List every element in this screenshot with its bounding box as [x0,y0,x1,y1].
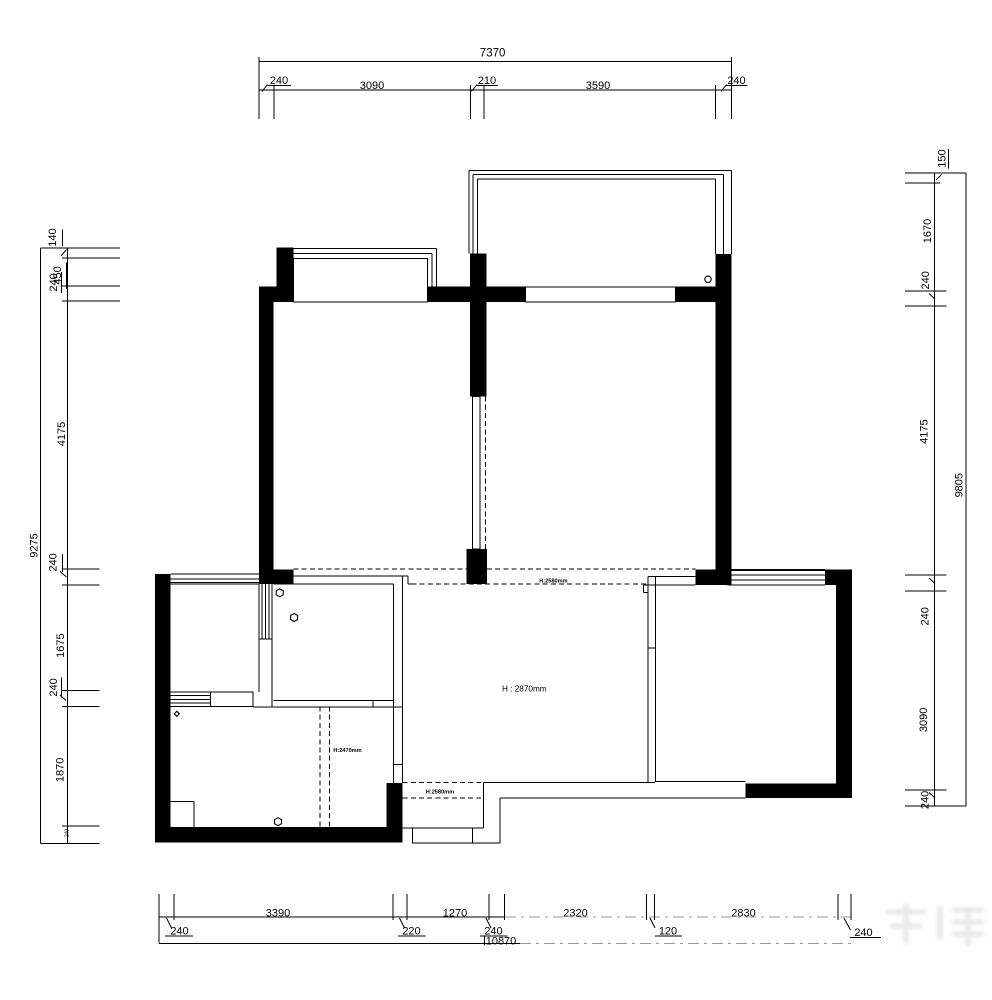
svg-text:9805: 9805 [954,473,966,497]
svg-text:240: 240 [65,829,71,838]
svg-text:240: 240 [48,553,60,571]
svg-text:240: 240 [920,607,932,625]
svg-text:240: 240 [920,791,932,809]
svg-text:4175: 4175 [919,419,931,443]
svg-text:3590: 3590 [586,80,610,92]
svg-text:1270: 1270 [443,908,467,920]
svg-text:240: 240 [920,271,932,289]
svg-text:220: 220 [402,926,420,938]
svg-text:120: 120 [659,926,677,938]
svg-text:3390: 3390 [266,908,290,920]
svg-text:9275: 9275 [29,533,41,557]
svg-text:H:2580mm: H:2580mm [426,790,454,796]
svg-text:3090: 3090 [360,80,384,92]
svg-text:2830: 2830 [731,908,755,920]
svg-text:4175: 4175 [56,422,68,446]
svg-text:7370: 7370 [480,48,506,60]
svg-text:240: 240 [48,678,60,696]
svg-text:240: 240 [48,273,60,291]
svg-text:H:2580mm: H:2580mm [539,578,567,584]
svg-text:2320: 2320 [563,908,587,920]
svg-text:10870: 10870 [486,936,517,948]
svg-text:3090: 3090 [918,708,930,732]
svg-text:H : 2870mm: H : 2870mm [502,684,547,693]
svg-text:1870: 1870 [55,758,67,782]
svg-text:240: 240 [854,927,872,939]
svg-text:1675: 1675 [55,633,67,657]
svg-text:140: 140 [47,228,59,246]
svg-text:240: 240 [170,926,188,938]
svg-text:1670: 1670 [922,219,934,243]
svg-text:H:2470mm: H:2470mm [333,748,361,754]
svg-text:150: 150 [937,149,949,167]
